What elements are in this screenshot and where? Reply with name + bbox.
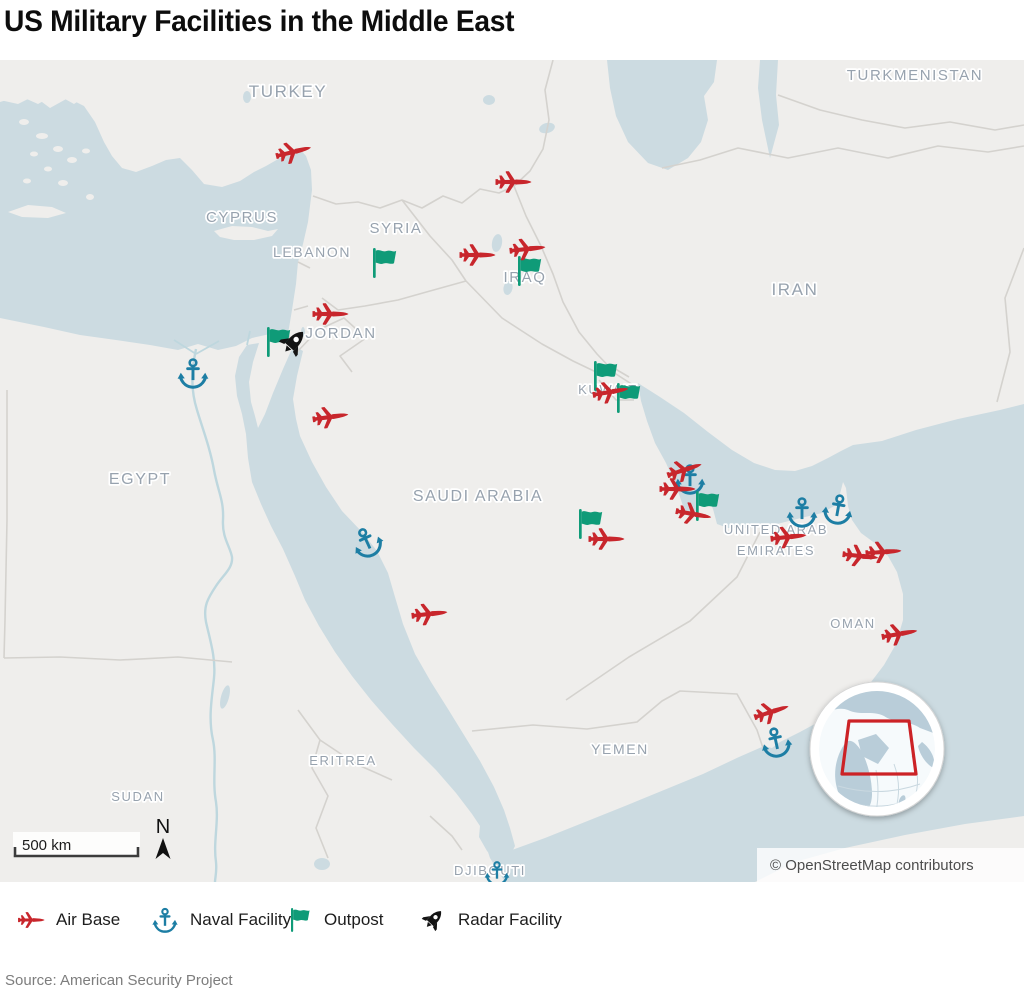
outpost-icon: [280, 900, 318, 940]
country-label-iran: IRAN: [771, 280, 818, 299]
inset-globe: [810, 682, 944, 816]
country-label-yemen: YEMEN: [591, 741, 649, 757]
legend-item-air-base: Air Base: [12, 900, 120, 940]
aegean-land: [0, 60, 92, 104]
north-label: N: [156, 816, 170, 838]
country-label-sudan: SUDAN: [111, 789, 165, 804]
legend-item-naval-facility: Naval Facility: [146, 900, 291, 940]
country-label-cyprus: CYPRUS: [206, 209, 278, 226]
country-label-jordan: JORDAN: [305, 325, 376, 342]
country-label-turkey: TURKEY: [249, 82, 328, 101]
legend-item-radar-facility: Radar Facility: [414, 900, 562, 940]
attribution-text: © OpenStreetMap contributors: [770, 857, 974, 874]
naval-facility-icon: [146, 900, 184, 940]
legend-item-outpost: Outpost: [280, 900, 384, 940]
country-label-djibouti: DJIBOUTI: [454, 863, 526, 878]
source-text: Source: American Security Project: [5, 972, 233, 989]
lake-tana: [314, 858, 330, 870]
country-label-turkmenistan: TURKMENISTAN: [847, 67, 983, 84]
radar-facility-icon: [414, 900, 452, 940]
legend-label: Naval Facility: [190, 910, 291, 930]
country-label-oman: OMAN: [830, 616, 875, 631]
country-label-syria: SYRIA: [369, 220, 422, 237]
legend-label: Radar Facility: [458, 910, 562, 930]
page-title: US Military Facilities in the Middle Eas…: [4, 5, 514, 39]
legend: Air BaseNaval FacilityOutpostRadar Facil…: [12, 882, 1012, 958]
legend-label: Air Base: [56, 910, 120, 930]
scale-bar: 500 km: [13, 832, 140, 856]
page: { "title": "US Military Facilities in th…: [0, 0, 1024, 1001]
map: TURKEYTURKMENISTANCYPRUSSYRIALEBANONIRAQ…: [0, 60, 1024, 882]
country-label-emirates: EMIRATES: [737, 543, 815, 558]
country-label-lebanon: LEBANON: [273, 244, 351, 260]
map-attribution: © OpenStreetMap contributors: [757, 848, 1024, 882]
lake-tuz: [483, 95, 495, 105]
country-label-egypt: EGYPT: [109, 471, 171, 488]
country-label-eritrea: ERITREA: [309, 753, 377, 768]
legend-label: Outpost: [324, 910, 384, 930]
country-label-saudi-arabia: SAUDI ARABIA: [413, 488, 543, 505]
scale-label: 500 km: [22, 837, 71, 854]
air-base-icon: [12, 900, 50, 940]
